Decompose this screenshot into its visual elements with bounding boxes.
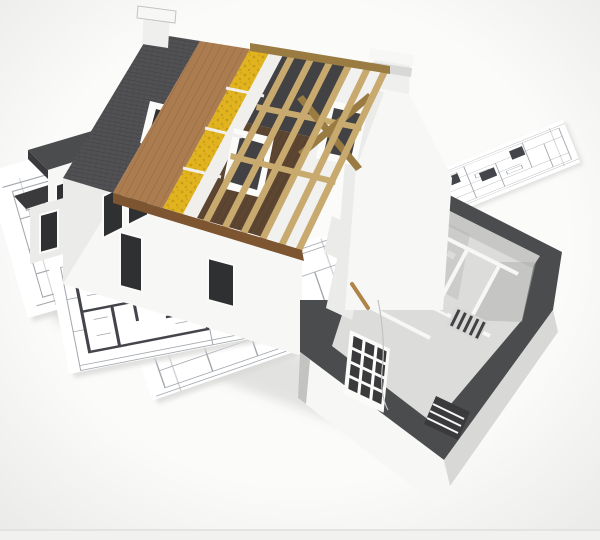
architectural-render	[0, 0, 600, 540]
annex-door	[40, 210, 58, 253]
bottom-strip	[0, 531, 600, 540]
front-window	[208, 258, 234, 307]
front-door	[120, 232, 142, 292]
house-render-canvas	[0, 0, 600, 540]
bottom-edge-line	[0, 529, 600, 531]
